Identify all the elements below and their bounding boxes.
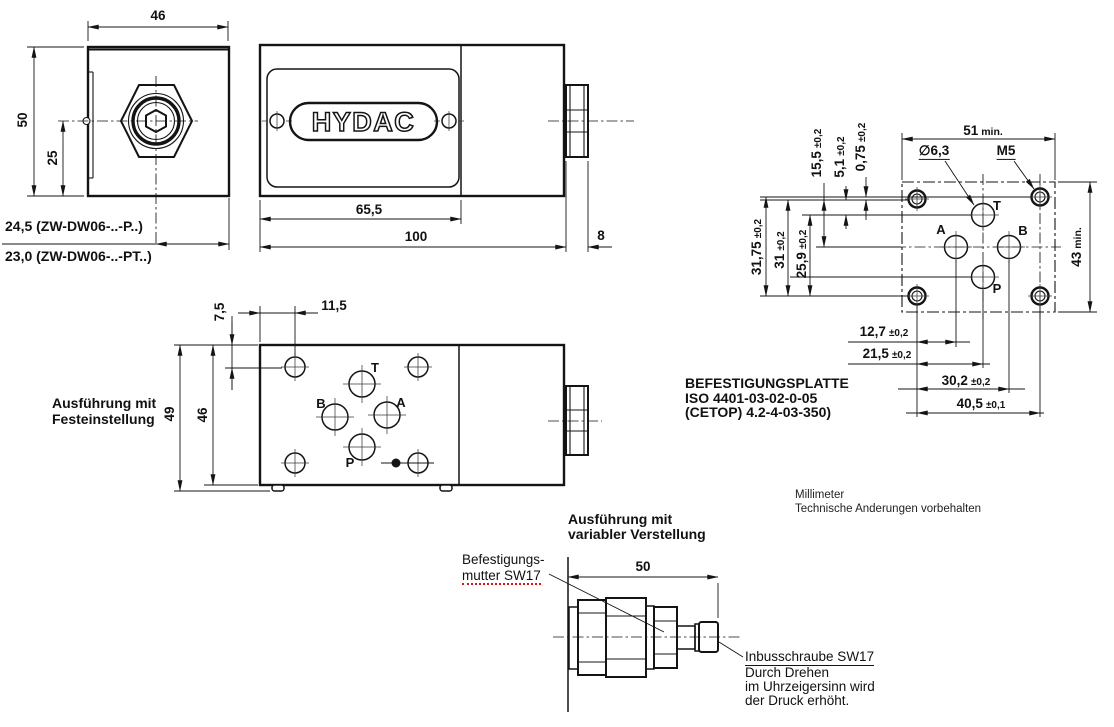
plate-dim-0-75: 0,75±0,2 [854, 123, 869, 172]
dim-tolerance: ±0,2 [889, 328, 908, 339]
front-height-dim: 50 [16, 112, 30, 127]
plate-port-p: P [993, 282, 1002, 296]
body-length-dim: 100 [405, 230, 428, 244]
dim-tolerance: ±0,2 [892, 350, 911, 361]
dim-tolerance: ±0,2 [776, 231, 787, 250]
plate-port-b: B [1018, 224, 1027, 238]
side-view-drawing: HYDAC [260, 45, 634, 252]
variant-note-pt: 23,0 (ZW-DW06-..-PT..) [5, 249, 152, 264]
plate-port-a: A [936, 223, 945, 237]
screw-note-title: Inbusschraube SW17 [745, 650, 874, 664]
units-note: Millimeter [795, 489, 844, 501]
plate-port-t: T [993, 199, 1001, 213]
front-width-dim: 46 [150, 9, 165, 23]
dim-tolerance: ±0,2 [813, 129, 824, 148]
nut-width-dim: 8 [597, 229, 605, 243]
plate-length-dim: 65,5 [356, 203, 382, 217]
height-body-dim: 46 [196, 407, 210, 422]
plate-dim-21-5: 21,5±0,2 [863, 347, 912, 362]
dim-value: 25,9 [794, 252, 809, 278]
nut-label-line-1: Befestigungs- [462, 553, 545, 567]
technical-drawing-page: HYDAC [0, 0, 1114, 727]
drawing-canvas: HYDAC [0, 0, 1114, 727]
dim-tolerance: ±0,2 [857, 123, 868, 142]
cartridge-caption-1: Ausführung mit [568, 512, 672, 527]
dim-value: 31 [772, 254, 787, 269]
cartridge-length-dim: 50 [635, 560, 650, 574]
dim-tolerance: ±0,2 [753, 219, 764, 238]
front-view-drawing [2, 21, 229, 250]
dim-suffix: min. [1072, 227, 1084, 249]
plate-title-line-3: (CETOP) 4.2-4-03-350) [685, 405, 831, 420]
top-view-port-a: A [396, 396, 405, 410]
nut-label-text: mutter SW17 [462, 568, 541, 585]
top-view-port-p: P [346, 456, 355, 470]
dim-value: 30,2 [942, 373, 968, 388]
plate-dim-31: 31±0,2 [773, 231, 788, 268]
plate-dim-15-5: 15,5±0,2 [810, 129, 825, 178]
dim-value: 21,5 [863, 346, 889, 361]
screw-note-line-3: der Druck erhöht. [745, 694, 849, 708]
plate-title-line-1: BEFESTIGUNGSPLATTE [685, 376, 849, 391]
plate-dim-25-9: 25,9±0,2 [795, 230, 810, 279]
plate-dim-12-7: 12,7±0,2 [860, 325, 909, 340]
dim-value: 15,5 [809, 151, 824, 177]
dim-tolerance: ±0,1 [986, 400, 1005, 411]
front-half-dim: 25 [46, 150, 60, 165]
top-view-port-t: T [371, 361, 379, 375]
dim-value: 12,7 [860, 324, 886, 339]
variant-note-p: 24,5 (ZW-DW06-..-P..) [5, 219, 143, 234]
screw-note-text: Inbusschraube SW17 [745, 649, 874, 666]
dim-value: 43 [1069, 252, 1084, 267]
changes-note: Technische Anderungen vorbehalten [795, 503, 981, 515]
dim-suffix: min. [981, 126, 1003, 138]
thread-label: M5 [997, 144, 1016, 160]
plate-dim-31-75: 31,75±0,2 [750, 219, 765, 275]
dim-value: 5,1 [832, 159, 847, 178]
top-view-caption-2: Festeinstellung [52, 412, 155, 427]
plate-width-dim: 51min. [963, 124, 1003, 138]
nut-label-line-2: mutter SW17 [462, 569, 541, 583]
dim-tolerance: ±0,2 [836, 136, 847, 155]
hydac-logo: HYDAC [312, 107, 416, 137]
height-total-dim: 49 [163, 406, 177, 421]
hole-diameter-label: ∅6,3 [919, 144, 950, 160]
top-view-drawing [174, 306, 602, 491]
cartridge-caption-2: variabler Verstellung [568, 527, 706, 542]
dim-tolerance: ±0,2 [798, 230, 809, 249]
dim-value: 0,75 [853, 145, 868, 171]
plate-height-dim: 43min. [1070, 227, 1084, 267]
plate-dim-30-2: 30,2±0,2 [942, 374, 991, 389]
cartridge-view-drawing [549, 557, 743, 712]
dim-value: 31,75 [749, 241, 764, 275]
top-view-caption-1: Ausführung mit [52, 396, 156, 411]
hole-offset-y-dim: 7,5 [213, 303, 227, 322]
hole-offset-x-dim: 11,5 [321, 299, 347, 313]
dim-value: 40,5 [957, 396, 983, 411]
top-view-port-b: B [316, 397, 325, 411]
plate-dim-5-1: 5,1±0,2 [833, 136, 848, 177]
dim-value: 51 [963, 123, 978, 138]
dim-tolerance: ±0,2 [971, 377, 990, 388]
plate-dim-40-5: 40,5±0,1 [957, 397, 1006, 412]
